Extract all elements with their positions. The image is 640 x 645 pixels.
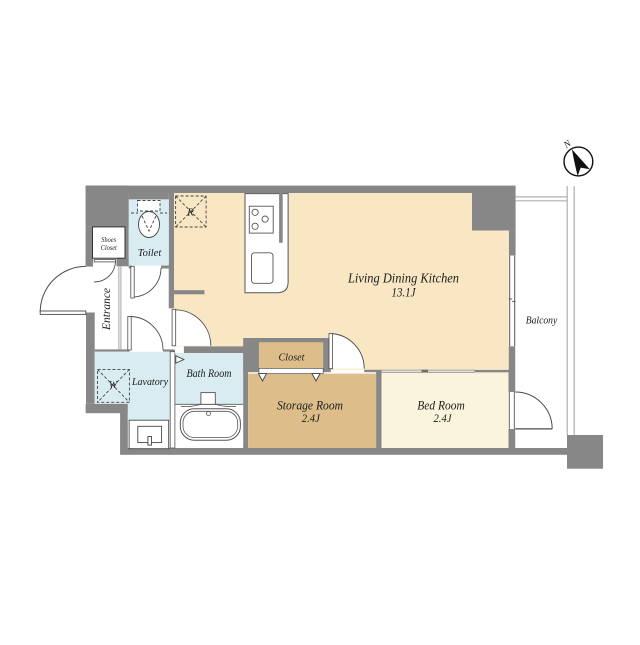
svg-text:Toilet: Toilet	[138, 247, 162, 259]
svg-text:Living Dining Kitchen: Living Dining Kitchen	[347, 271, 459, 286]
svg-text:Lavatory: Lavatory	[131, 376, 168, 388]
svg-text:Entrance: Entrance	[101, 288, 113, 331]
svg-text:Bed Room: Bed Room	[417, 399, 465, 413]
svg-text:Balcony: Balcony	[526, 315, 558, 327]
svg-text:R: R	[186, 207, 194, 219]
svg-text:Closet: Closet	[101, 243, 118, 252]
svg-text:Closet: Closet	[279, 352, 306, 364]
svg-text:2.4J: 2.4J	[302, 413, 321, 425]
svg-text:Bath Room: Bath Room	[187, 366, 232, 380]
svg-text:13.1J: 13.1J	[392, 286, 417, 300]
svg-text:2.4J: 2.4J	[434, 413, 453, 425]
svg-text:Storage Room: Storage Room	[277, 399, 343, 413]
